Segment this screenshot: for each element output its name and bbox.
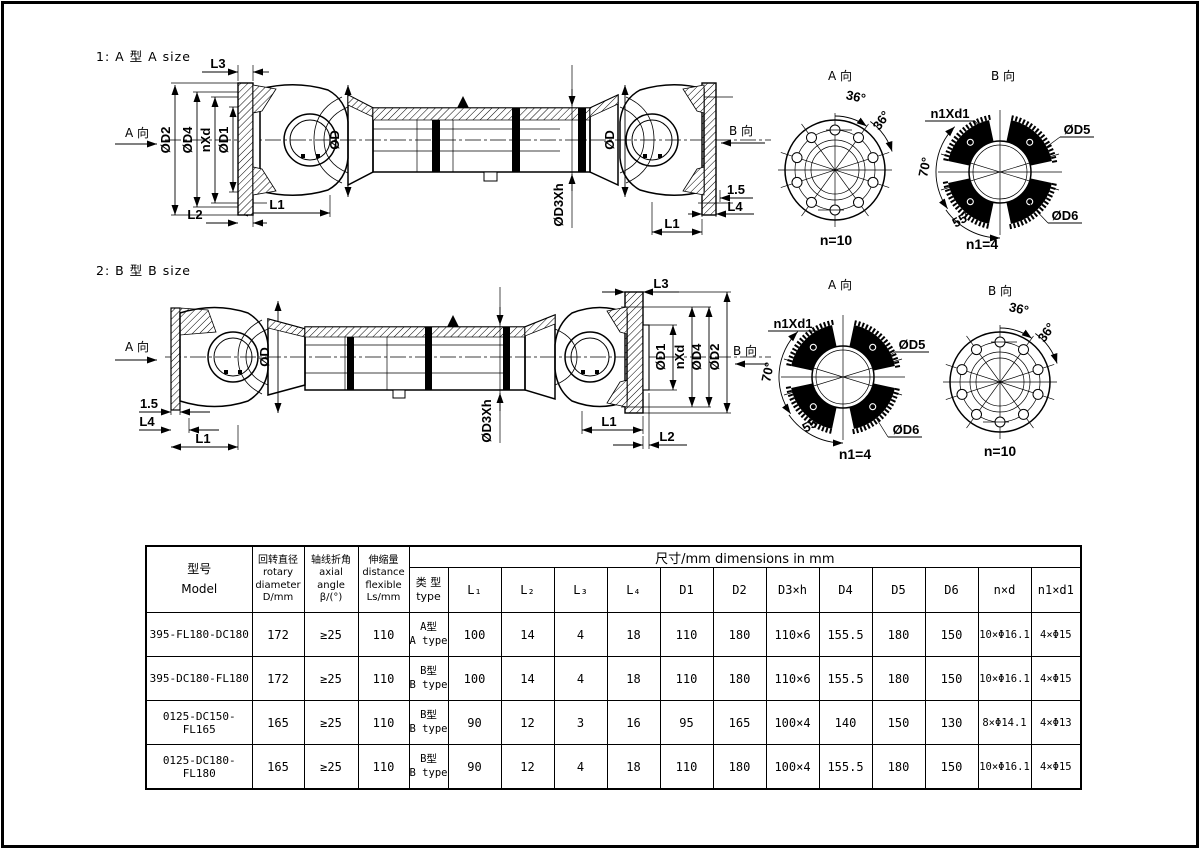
shaft-tube: ØD3Xh: [268, 287, 555, 443]
table-cell: 18: [607, 745, 660, 790]
col-header-axial-angle: 轴线折角 axial angle β/(°): [304, 546, 358, 613]
table-cell: 12: [501, 745, 554, 790]
hole-count-label: n1=4: [839, 446, 872, 462]
col-header-flex-distance: 伸缩量 distance flexible Ls/mm: [358, 546, 409, 613]
dim-d1-label: ØD1: [653, 344, 668, 371]
table-cell: 110: [660, 613, 713, 657]
spec-table: 型号 Model 回转直径 rotary diameter D/mm 轴线折角 …: [145, 545, 1082, 790]
table-cell: B型 B type: [409, 701, 448, 745]
b-direction-label: B 向: [733, 343, 757, 358]
dim-l4-label: L4: [727, 199, 743, 214]
table-cell: 110: [358, 745, 409, 790]
table-cell: 18: [607, 613, 660, 657]
table-row: 0125-DC150-FL165165≥25110B型 B type901231…: [146, 701, 1081, 745]
table-cell: 0125-DC150-FL165: [146, 701, 252, 745]
dim-l2-label: L2: [187, 207, 202, 222]
table-cell: 100: [448, 657, 501, 701]
dim-l4-label: L4: [139, 414, 155, 429]
table-cell: 150: [872, 701, 925, 745]
hole-count-label: n=10: [820, 232, 853, 248]
table-cell: 100×4: [766, 745, 819, 790]
table-row: 395-FL180-DC180172≥25110A型 A type1001441…: [146, 613, 1081, 657]
left-flange-yoke: ØD: [238, 83, 348, 215]
dim-gap-label: 1.5: [140, 396, 158, 411]
dim-l2-label: L2: [659, 429, 674, 444]
col-header-d5: D5: [872, 568, 925, 613]
drawing-b-side-view: A 向 ØD 1.5 L4 L1: [95, 275, 775, 460]
angle-36-label: 36°: [1035, 320, 1059, 345]
col-header-nxd: n×d: [978, 568, 1031, 613]
dim-d2-label: ØD2: [158, 127, 173, 154]
angle-36-label: 36°: [1008, 299, 1030, 318]
col-header-dimensions-banner: 尺寸/mm dimensions in mm: [409, 546, 1081, 568]
table-cell: 4: [554, 745, 607, 790]
dim-d6-label: ØD6: [1052, 208, 1079, 223]
table-cell: 18: [607, 657, 660, 701]
dim-d-label: ØD: [602, 130, 617, 150]
dim-d-label: ØD: [257, 347, 272, 367]
table-cell: 14: [501, 613, 554, 657]
col-header-d6: D6: [925, 568, 978, 613]
table-cell: 150: [925, 745, 978, 790]
table-cell: 180: [713, 745, 766, 790]
dim-l1-label: L1: [195, 431, 210, 446]
table-cell: 165: [252, 701, 304, 745]
table-cell: 180: [872, 745, 925, 790]
col-header-l1: L₁: [448, 568, 501, 613]
table-cell: 4×Φ13: [1031, 701, 1081, 745]
table-cell: ≥25: [304, 657, 358, 701]
a-direction-label: A 向: [125, 125, 149, 140]
table-cell: 3: [554, 701, 607, 745]
view-a-title: A 向: [828, 68, 852, 83]
col-header-d2: D2: [713, 568, 766, 613]
angle-70-label: 70°: [915, 156, 934, 178]
hole-count-label: n1=4: [966, 236, 999, 252]
table-cell: 90: [448, 701, 501, 745]
table-row: 0125-DC180-FL180165≥25110B型 B type901241…: [146, 745, 1081, 790]
table-cell: 165: [713, 701, 766, 745]
dim-d2-label: ØD2: [707, 344, 722, 371]
table-cell: 110×6: [766, 657, 819, 701]
dim-d-label: ØD: [327, 130, 342, 150]
table-cell: 4×Φ15: [1031, 613, 1081, 657]
dim-nxd-label: nXd: [198, 128, 213, 153]
angle-70-label: 70°: [758, 361, 777, 383]
table-cell: 110: [358, 657, 409, 701]
table-cell: 95: [660, 701, 713, 745]
col-header-l4: L₄: [607, 568, 660, 613]
table-cell: ≥25: [304, 701, 358, 745]
table-cell: 172: [252, 657, 304, 701]
col-header-l2: L₂: [501, 568, 554, 613]
table-cell: 110×6: [766, 613, 819, 657]
table-cell: 110: [660, 657, 713, 701]
flange-views-row-1: A 向 36° 36° n=10 B 向: [760, 55, 1190, 260]
table-cell: 10×Φ16.1: [978, 613, 1031, 657]
dim-d3h-label: ØD3Xh: [551, 183, 566, 226]
table-cell: 395-DC180-FL180: [146, 657, 252, 701]
dim-d5-label: ØD5: [899, 337, 926, 352]
angle-36-label: 36°: [845, 87, 867, 106]
flange-views-row-2: A 向 n1Xd1: [760, 265, 1190, 470]
dim-l1-label: L1: [269, 197, 284, 212]
table-cell: 12: [501, 701, 554, 745]
table-cell: 150: [925, 657, 978, 701]
col-header-n1xd1: n1×d1: [1031, 568, 1081, 613]
table-cell: 4×Φ15: [1031, 745, 1081, 790]
table-cell: 110: [358, 701, 409, 745]
dim-d4-label: ØD4: [180, 126, 195, 154]
view-b-bolt-flange: B 向 36° 36° n=10: [943, 283, 1058, 459]
shaft-tube: ØD3Xh: [348, 65, 618, 228]
table-cell: 16: [607, 701, 660, 745]
col-header-model: 型号 Model: [146, 546, 252, 613]
col-header-type: 类 型 type: [409, 568, 448, 613]
table-cell: 110: [358, 613, 409, 657]
dim-d3h-label: ØD3Xh: [479, 399, 494, 442]
dim-gap-label: 1.5: [727, 182, 745, 197]
b-direction-label: B 向: [729, 123, 753, 138]
col-header-rotary-diameter: 回转直径 rotary diameter D/mm: [252, 546, 304, 613]
table-row: 395-DC180-FL180172≥25110B型 B type1001441…: [146, 657, 1081, 701]
view-b-title: B 向: [991, 68, 1015, 83]
col-header-d3h: D3×h: [766, 568, 819, 613]
table-cell: 155.5: [819, 613, 872, 657]
dim-d6-label: ØD6: [893, 422, 920, 437]
table-cell: ≥25: [304, 613, 358, 657]
dim-d4-label: ØD4: [689, 343, 704, 371]
right-flange-yoke: [555, 292, 711, 413]
table-cell: 180: [713, 657, 766, 701]
view-b-title: B 向: [988, 283, 1012, 298]
col-header-d4: D4: [819, 568, 872, 613]
view-b-serrated-flange: B 向 n1Xd1: [915, 68, 1094, 252]
table-cell: 10×Φ16.1: [978, 745, 1031, 790]
table-cell: 90: [448, 745, 501, 790]
table-cell: ≥25: [304, 745, 358, 790]
table-cell: 140: [819, 701, 872, 745]
table-cell: 180: [713, 613, 766, 657]
dim-l3-label: L3: [653, 276, 668, 291]
drawing-a-side-view: A 向 ØD2 ØD4 nXd ØD1 L3 L1: [95, 45, 775, 245]
spec-table-body: 395-FL180-DC180172≥25110A型 A type1001441…: [146, 613, 1081, 790]
dim-n1xd1-label: n1Xd1: [930, 106, 969, 121]
table-cell: 395-FL180-DC180: [146, 613, 252, 657]
table-cell: 155.5: [819, 657, 872, 701]
table-cell: 110: [660, 745, 713, 790]
a-direction-label: A 向: [125, 339, 149, 354]
table-cell: 4: [554, 657, 607, 701]
dim-n1xd1-label: n1Xd1: [773, 316, 812, 331]
view-direction-a-arrow: A 向: [115, 339, 157, 360]
table-cell: 8×Φ14.1: [978, 701, 1031, 745]
drawing-sheet: 1: A 型 A size 2: B 型 B size A 向 ØD2 ØD4: [0, 0, 1200, 849]
table-cell: 14: [501, 657, 554, 701]
table-cell: 4×Φ15: [1031, 657, 1081, 701]
table-cell: 150: [925, 613, 978, 657]
table-cell: 4: [554, 613, 607, 657]
table-cell: 180: [872, 613, 925, 657]
view-a-title: A 向: [828, 277, 852, 292]
table-cell: 172: [252, 613, 304, 657]
dim-l1-label: L1: [664, 216, 679, 231]
view-a-serrated-flange: A 向 n1Xd1: [758, 277, 929, 462]
col-header-l3: L₃: [554, 568, 607, 613]
dim-l3-label: L3: [210, 56, 225, 71]
dim-l1-label: L1: [601, 414, 616, 429]
hole-count-label: n=10: [984, 443, 1017, 459]
view-a-bolt-flange: A 向 36° 36° n=10: [778, 68, 893, 248]
table-cell: 100: [448, 613, 501, 657]
table-cell: 10×Φ16.1: [978, 657, 1031, 701]
table-cell: B型 B type: [409, 657, 448, 701]
table-cell: B型 B type: [409, 745, 448, 790]
view-direction-a-arrow: A 向: [115, 125, 157, 144]
table-cell: 130: [925, 701, 978, 745]
dim-d1-label: ØD1: [216, 127, 231, 154]
table-cell: A型 A type: [409, 613, 448, 657]
right-flange-yoke: ØD: [602, 83, 733, 215]
dim-nxd-label: nXd: [672, 345, 687, 370]
angle-36-label: 36°: [870, 108, 894, 133]
col-header-d1: D1: [660, 568, 713, 613]
table-cell: 100×4: [766, 701, 819, 745]
table-cell: 155.5: [819, 745, 872, 790]
table-cell: 165: [252, 745, 304, 790]
dim-d5-label: ØD5: [1064, 122, 1091, 137]
table-cell: 0125-DC180-FL180: [146, 745, 252, 790]
table-cell: 180: [872, 657, 925, 701]
right-flange-dimensions: L3 ØD1 nXd ØD4 ØD2 B 向 L1 L2: [582, 276, 767, 449]
